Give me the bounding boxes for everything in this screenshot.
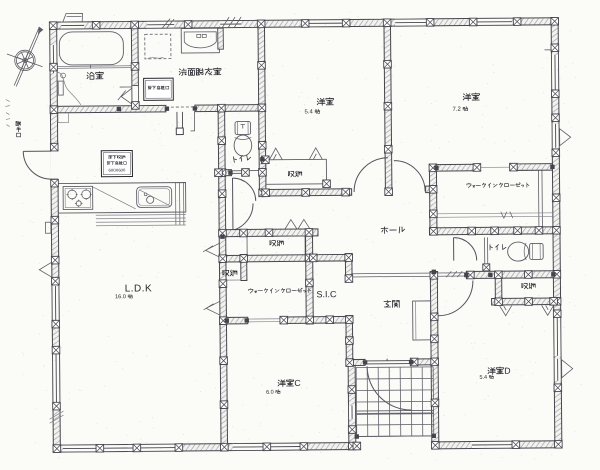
svg-text:C: C bbox=[294, 378, 301, 388]
svg-text:16.0: 16.0 bbox=[115, 294, 126, 300]
svg-text:S.I.C: S.I.C bbox=[316, 289, 337, 299]
svg-text:5.4: 5.4 bbox=[305, 109, 314, 115]
svg-text:600X600: 600X600 bbox=[109, 168, 126, 173]
svg-text:6.0: 6.0 bbox=[266, 390, 274, 396]
svg-text:7.2: 7.2 bbox=[452, 107, 461, 113]
svg-text:5.4: 5.4 bbox=[479, 375, 487, 381]
svg-text:L.D.K: L.D.K bbox=[125, 283, 153, 294]
svg-text:D: D bbox=[504, 366, 510, 376]
